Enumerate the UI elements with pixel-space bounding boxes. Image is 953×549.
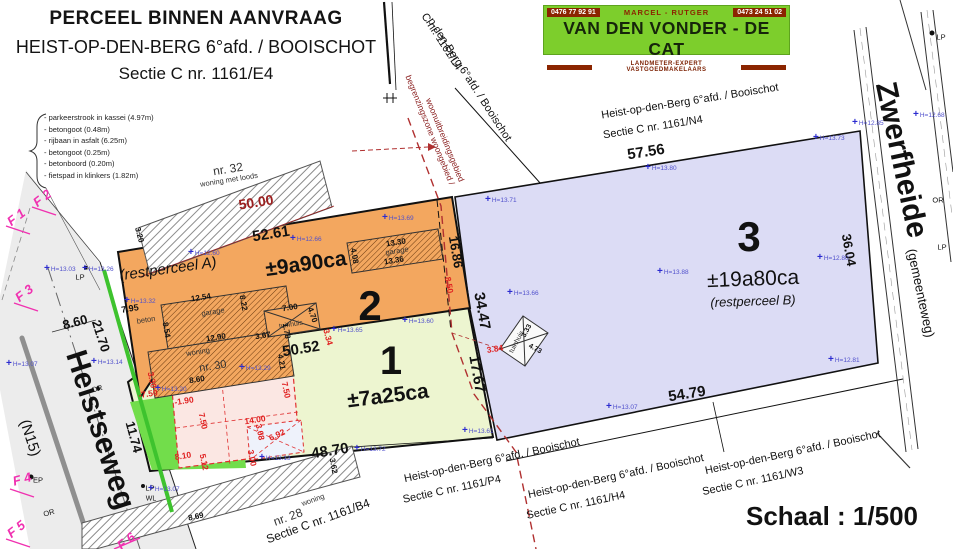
cadastral-plan-page: PERCEEL BINNEN AANVRAAG HEIST-OP-DEN-BER… xyxy=(0,0,953,549)
title-municipality: HEIST-OP-DEN-BERG 6°afd. / BOOISCHOT xyxy=(6,37,386,58)
title-section: Sectie C nr. 1161/E4 xyxy=(6,64,386,84)
legend-list: - parkeerstrook in kassei (4.97m)- beton… xyxy=(44,112,264,181)
page-title: PERCEEL BINNEN AANVRAAG xyxy=(6,8,386,30)
legend-item: - fietspad in klinkers (1.82m) xyxy=(44,170,264,182)
title-block: PERCEEL BINNEN AANVRAAG HEIST-OP-DEN-BER… xyxy=(6,8,386,84)
legend-item: - betongoot (0.48m) xyxy=(44,124,264,136)
legend-item: - parkeerstrook in kassei (4.97m) xyxy=(44,112,264,124)
banner-names: MARCEL - RUTGER xyxy=(624,8,709,17)
banner-company-name: VAN DEN VONDER - DE CAT xyxy=(544,18,789,60)
legend-item: - betongoot (0.25m) xyxy=(44,147,264,159)
banner-bar-left xyxy=(547,65,592,70)
surveyor-banner: 0476 77 92 91 MARCEL - RUTGER 0473 24 51… xyxy=(543,5,790,55)
banner-bar-right xyxy=(741,65,786,70)
legend-item: - rijbaan in asfalt (6.25m) xyxy=(44,135,264,147)
road-legend: - parkeerstrook in kassei (4.97m)- beton… xyxy=(44,112,264,181)
scale-label: Schaal : 1/500 xyxy=(722,501,942,532)
banner-tagline: LANDMETER-EXPERT VASTGOEDMAKELAARS xyxy=(592,61,742,73)
legend-item: - betonboord (0.20m) xyxy=(44,158,264,170)
banner-phone-right: 0473 24 51 02 xyxy=(733,8,786,17)
parcel-3-shape xyxy=(455,131,878,440)
banner-phone-left: 0476 77 92 91 xyxy=(547,8,600,17)
road-zwerfheide-lines xyxy=(854,0,953,468)
